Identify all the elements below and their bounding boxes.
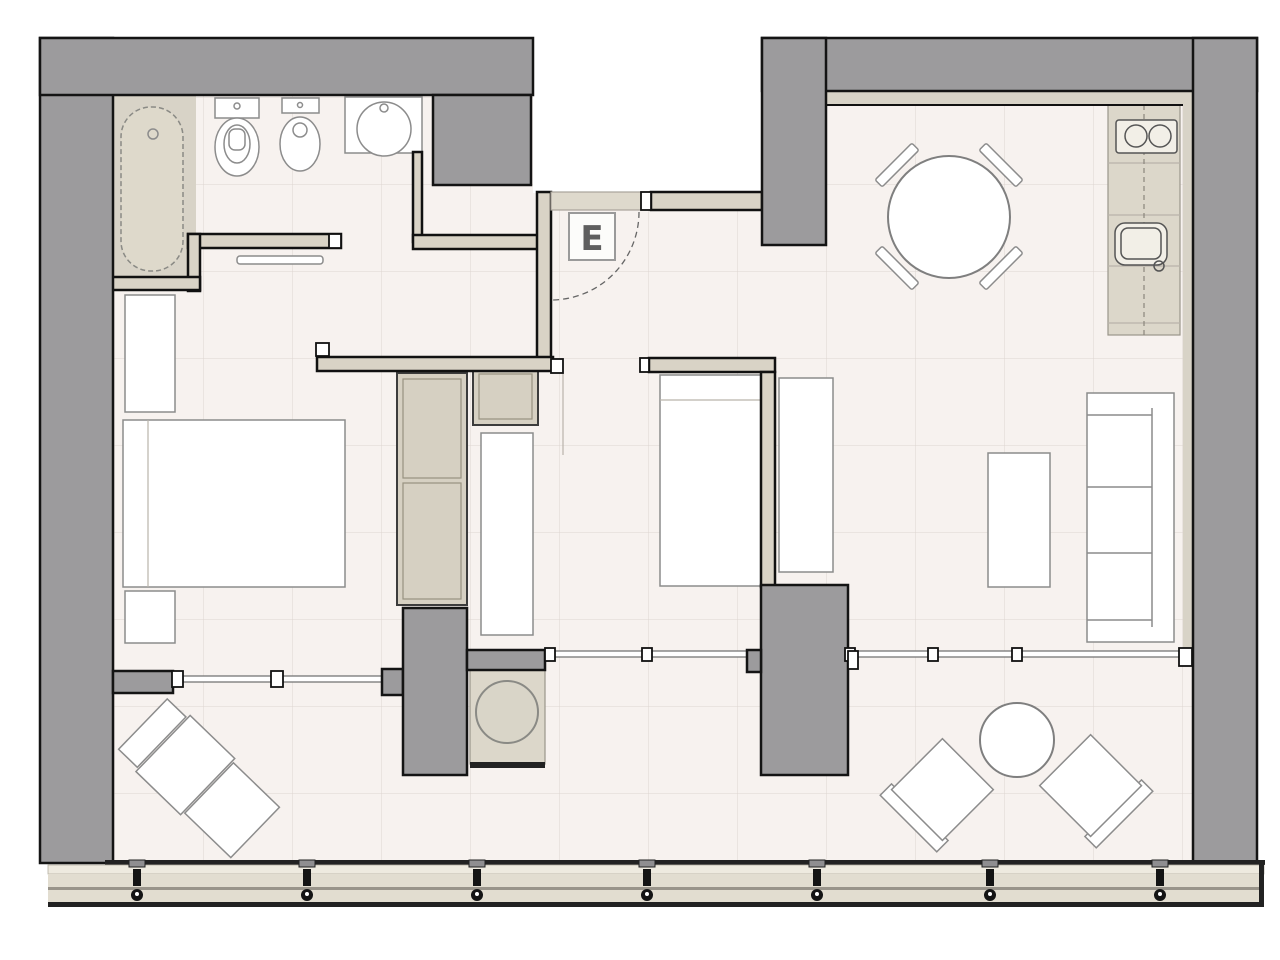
dresser-bedroom1: [125, 295, 175, 412]
railing-post-stem: [303, 869, 311, 886]
jamb-window-8: [1179, 648, 1192, 666]
double-bed: [123, 420, 345, 587]
railing-post-tab: [982, 860, 998, 867]
sofa: [1087, 393, 1174, 642]
jamb-bath-door: [329, 234, 341, 248]
balcony-floor-edge: [105, 860, 1265, 865]
gray-top-right-wall: [762, 38, 1257, 91]
toilet-bowl: [215, 118, 259, 176]
railing-row-1: [48, 865, 1264, 874]
gray-tab-pillar2: [747, 650, 761, 672]
railing-bottom-line: [48, 902, 1264, 907]
railing-post-foot-dot: [135, 892, 139, 896]
gray-pillar-2: [761, 585, 848, 775]
gray-top-left-wall: [40, 38, 533, 95]
railing-post-tab: [639, 860, 655, 867]
railing-post-stem: [643, 869, 651, 886]
railing-row-2: [48, 874, 1264, 887]
gray-left-wall: [40, 38, 113, 863]
plan-root: E: [40, 36, 1265, 907]
gray-pillar-1: [403, 608, 467, 775]
jamb-window-3: [545, 648, 555, 661]
railing-post-foot-dot: [988, 892, 992, 896]
railing-post-stem: [133, 869, 141, 886]
wall-bedroom2-north: [649, 358, 775, 372]
railing-post-stem: [986, 869, 994, 886]
railing-post-foot-dot: [305, 892, 309, 896]
wall-vestibule-east: [651, 192, 762, 210]
railing-post-tab: [1152, 860, 1168, 867]
railing-post-foot-dot: [1158, 892, 1162, 896]
toilet-tank: [215, 98, 259, 118]
wall-bathroom-east: [413, 152, 422, 242]
railing-right-edge: [1259, 862, 1264, 907]
sliding-leaf-bedroom2: [481, 433, 533, 635]
jamb-window-7: [1012, 648, 1022, 661]
plaster-right-wall: [1183, 103, 1193, 655]
jamb-bedroom1-right: [551, 359, 563, 373]
entrance-threshold: [551, 192, 641, 210]
railing-post-tab: [469, 860, 485, 867]
jamb-window-2: [271, 671, 283, 687]
gray-bathroom-block: [433, 95, 531, 185]
gray-stub-bedroom1-left: [113, 671, 173, 693]
jamb-bedroom2-left: [640, 358, 649, 372]
washer-drum: [476, 681, 538, 743]
railing-post-stem: [1156, 869, 1164, 886]
hall-wardrobe: [397, 373, 467, 605]
wall-bedroom1-north: [317, 357, 553, 371]
bidet-bowl: [280, 117, 320, 171]
wall-hall-north: [413, 235, 543, 249]
wall-bedroom2-east: [761, 372, 775, 587]
railing-post-tab: [129, 860, 145, 867]
gray-stub-washer: [467, 650, 545, 670]
wardrobe-bedroom2: [779, 378, 833, 572]
railing-post-stem: [473, 869, 481, 886]
railing-post-tab: [809, 860, 825, 867]
hall-closet: [473, 368, 538, 425]
railing-post-stem: [813, 869, 821, 886]
wall-bathroom-south: [188, 234, 341, 248]
sink-basin: [357, 102, 411, 156]
gray-stub-bedroom1-right: [382, 669, 403, 695]
gray-top-right-arm: [762, 38, 826, 245]
bathtub: [121, 107, 183, 271]
dining-table: [888, 156, 1010, 278]
railing-post-tab: [299, 860, 315, 867]
railing-row-3: [48, 890, 1264, 902]
railing-mid-line: [48, 887, 1264, 890]
jamb-pillar2-right: [848, 651, 858, 669]
floor-plan-canvas: E: [0, 0, 1280, 960]
nightstand-bedroom1: [125, 591, 175, 643]
single-bed: [660, 375, 763, 586]
railing-post-foot-dot: [645, 892, 649, 896]
jamb-entrance-hinge: [641, 192, 651, 210]
balcony-table: [980, 703, 1054, 777]
gray-right-wall: [1193, 38, 1257, 862]
jamb-window-4: [642, 648, 652, 661]
entrance-label: E: [580, 219, 603, 259]
floor-plan: E: [0, 0, 1280, 960]
jamb-window-6: [928, 648, 938, 661]
plaster-kitchen-top: [826, 91, 1193, 105]
bidet-tap: [282, 98, 319, 113]
railing-post-foot-dot: [475, 892, 479, 896]
jamb-window-1: [172, 671, 183, 687]
washer-bottom-line: [470, 762, 545, 768]
exterior-gap: [533, 36, 762, 193]
wall-vestibule-west: [537, 192, 551, 358]
window-living-left: [551, 651, 761, 657]
pocket-door-leaf-bathroom: [237, 256, 323, 264]
wall-tub-niche-south: [105, 277, 200, 290]
jamb-bedroom1-left: [316, 343, 329, 356]
coffee-table: [988, 453, 1050, 587]
railing-post-foot-dot: [815, 892, 819, 896]
